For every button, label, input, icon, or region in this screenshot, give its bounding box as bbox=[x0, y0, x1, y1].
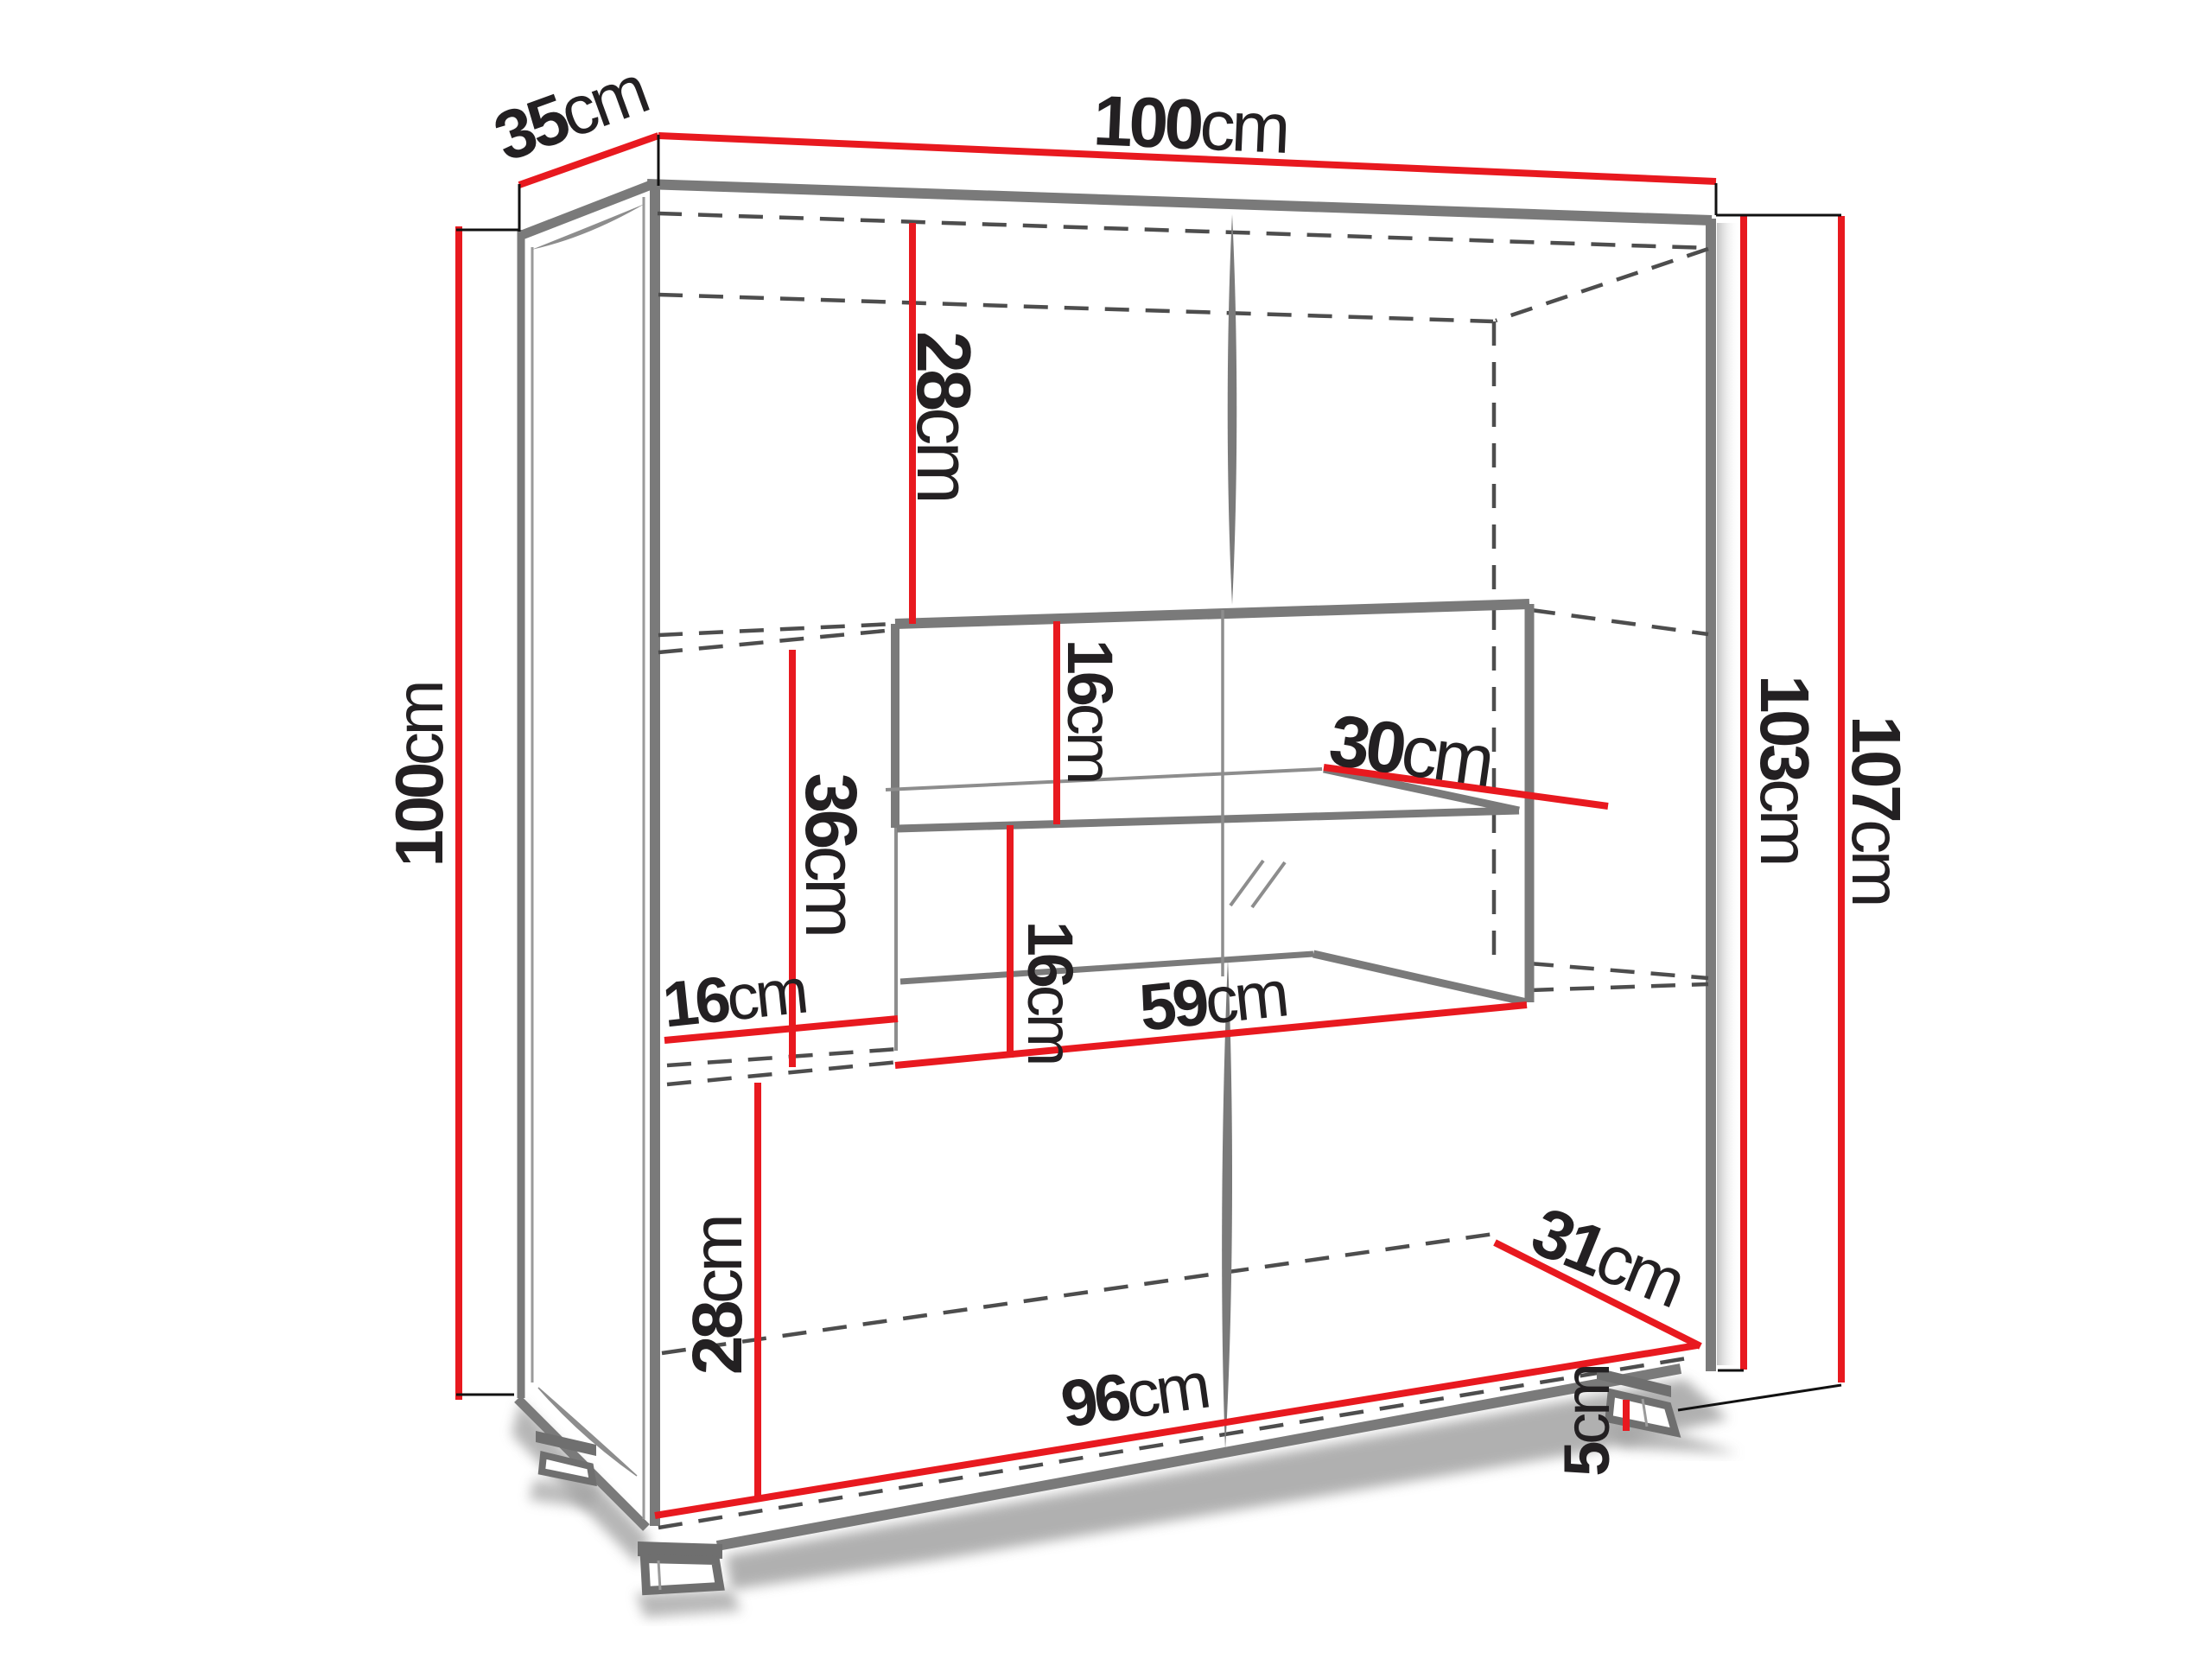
svg-text:59cm: 59cm bbox=[1136, 957, 1289, 1046]
svg-text:100cm: 100cm bbox=[1092, 81, 1288, 168]
svg-text:103cm: 103cm bbox=[1746, 675, 1823, 863]
svg-text:35cm: 35cm bbox=[485, 51, 656, 176]
svg-text:28cm: 28cm bbox=[678, 1217, 757, 1376]
svg-text:16cm: 16cm bbox=[1054, 639, 1126, 782]
svg-text:28cm: 28cm bbox=[901, 331, 987, 500]
svg-text:5cm: 5cm bbox=[1551, 1366, 1623, 1477]
svg-text:16cm: 16cm bbox=[659, 955, 808, 1041]
svg-text:100cm: 100cm bbox=[381, 683, 457, 868]
svg-text:107cm: 107cm bbox=[1838, 715, 1915, 904]
svg-text:30cm: 30cm bbox=[1325, 699, 1496, 802]
svg-text:36cm: 36cm bbox=[791, 773, 872, 935]
svg-text:16cm: 16cm bbox=[1014, 921, 1086, 1064]
